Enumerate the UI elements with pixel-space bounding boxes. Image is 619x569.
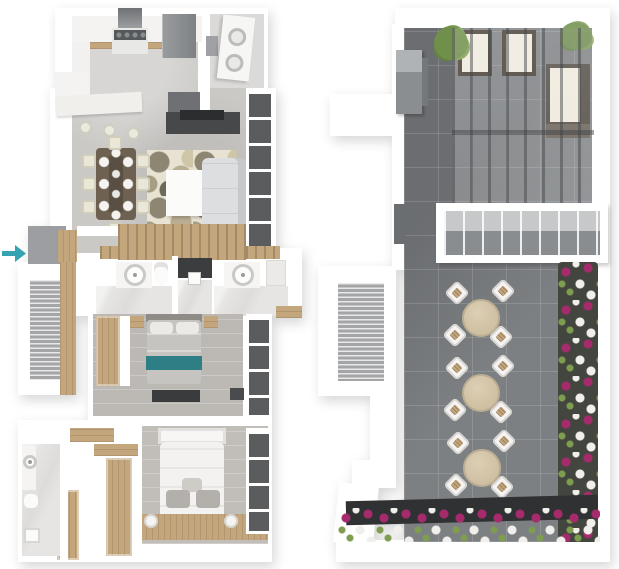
- bistro-chair: [490, 353, 515, 378]
- bistro-chair: [445, 430, 470, 455]
- pergola-beam: [452, 130, 594, 135]
- bistro-chair: [491, 428, 516, 453]
- bbq-grill: [396, 50, 422, 114]
- bistro-table-set: [447, 432, 517, 504]
- bottom-flowers: [338, 508, 600, 542]
- bistro-chair: [444, 280, 469, 305]
- wall-glass-inset: [394, 204, 406, 244]
- bistro-table: [463, 449, 501, 487]
- terrace-wall-bottom: [336, 540, 610, 562]
- floor-plan-render: [0, 0, 619, 569]
- glass-railing: [436, 203, 608, 263]
- terrace-wall-left-lower: [370, 396, 396, 466]
- grill-side-shelf: [422, 58, 428, 106]
- bistro-table-set: [446, 282, 516, 354]
- terrace-stair-treads: [338, 283, 384, 381]
- glass-railing-panels: [444, 211, 600, 255]
- bistro-chair: [444, 355, 469, 380]
- bistro-table: [462, 374, 500, 412]
- terrace-bumpout-upper: [330, 94, 394, 136]
- bistro-table-set: [446, 357, 516, 429]
- terrace-plan: [0, 0, 619, 569]
- bistro-table: [462, 299, 500, 337]
- bistro-chair: [490, 278, 515, 303]
